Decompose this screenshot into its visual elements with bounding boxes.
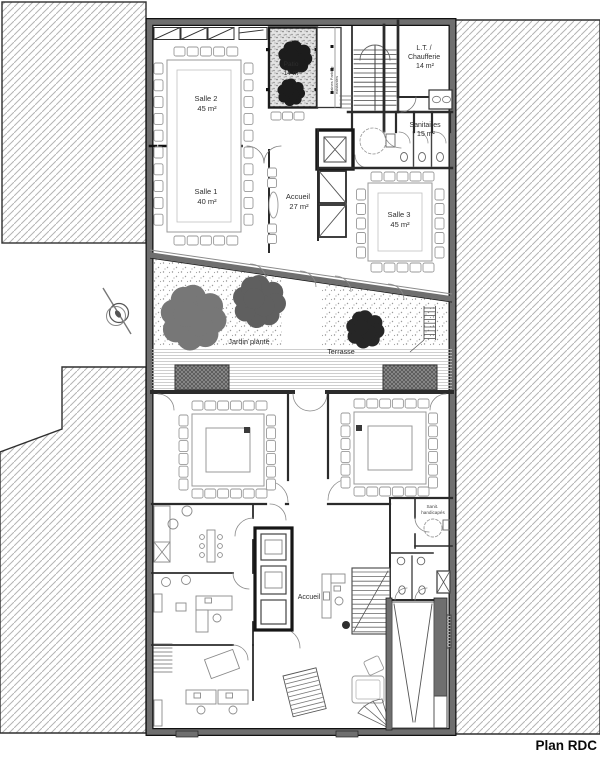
column: [342, 621, 350, 629]
label-accueil-bas: Accueil: [298, 594, 321, 601]
projector-right: [356, 425, 362, 431]
floor-plan-sheet: Salle 2 45 m² Salle 1 40 m² Patio 14 m² …: [0, 0, 600, 761]
plan-title: Plan RDC: [535, 738, 597, 753]
projector-left: [244, 427, 250, 433]
neighbor-block-right: [455, 20, 600, 734]
neighbor-block-bottom-left: [0, 367, 146, 733]
salle12-furniture: [154, 47, 253, 245]
label-salle1: Salle 1 40 m²: [194, 187, 219, 206]
label-terrasse: Terrasse: [327, 347, 355, 356]
car-ramp: [386, 598, 447, 730]
meeting-room-right: [341, 399, 438, 496]
label-jardin: Jardin planté: [228, 337, 269, 346]
storage-shafts: [255, 528, 292, 630]
label-salle3: Salle 3 45 m²: [387, 210, 412, 229]
meeting-room-left: [179, 401, 276, 498]
label-accueil: Accueil 27 m²: [286, 192, 312, 211]
planter-left: [175, 365, 229, 390]
north-arrow-icon: [103, 288, 131, 334]
planter-right: [383, 365, 437, 390]
floor-plan-drawing: Salle 2 45 m² Salle 1 40 m² Patio 14 m² …: [0, 0, 600, 761]
label-salle2: Salle 2 45 m²: [194, 94, 219, 113]
neighbor-block-top-left: [2, 2, 146, 243]
window-band: [154, 28, 267, 40]
